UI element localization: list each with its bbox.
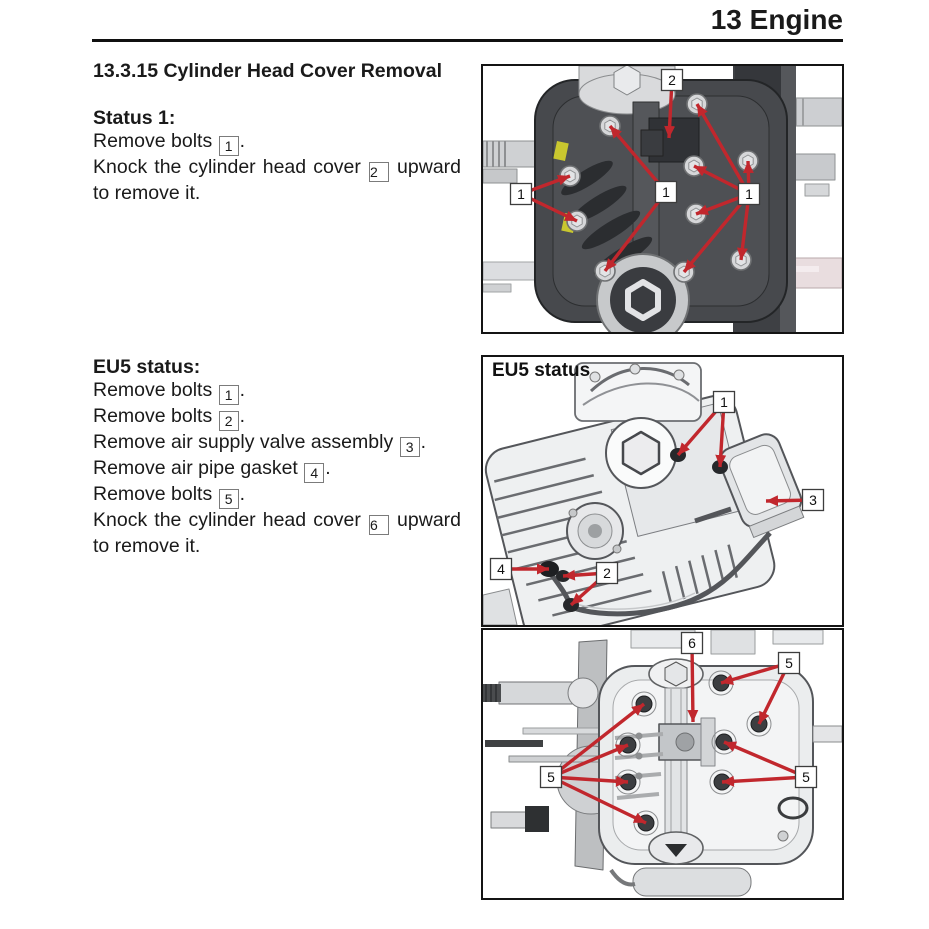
instruction-line: Remove air pipe gasket 4. [93,457,461,483]
svg-text:2: 2 [668,72,676,88]
instruction-lines: Remove bolts 1.Knock the cylinder head c… [93,130,461,205]
callout-ref-box: 2 [369,162,389,182]
instruction-block-eu5: EU5 status: Remove bolts 1.Remove bolts … [93,356,461,558]
svg-text:1: 1 [662,184,670,200]
callout-ref-box: 3 [400,437,420,457]
header-rule [92,39,843,42]
instruction-line: Knock the cylinder head cover 6 upward [93,509,461,535]
instruction-line: Knock the cylinder head cover 2 upward [93,156,461,182]
instruction-line: Remove bolts 5. [93,483,461,509]
callout-number-box: 1 [739,184,760,205]
callout-number-box: 4 [491,559,512,580]
figure-eu5-lower: 6555 [481,628,844,900]
svg-text:2: 2 [603,565,611,581]
svg-text:5: 5 [802,769,810,785]
section-title: 13.3.15 Cylinder Head Cover Removal [93,60,442,83]
instruction-line: to remove it. [93,535,461,558]
instruction-line: Remove bolts 1. [93,130,461,156]
callout-number-box: 1 [511,184,532,205]
block-heading: EU5 status: [93,356,461,379]
callout-ref-box: 6 [369,515,389,535]
svg-text:5: 5 [547,769,555,785]
instruction-block-status1: Status 1: Remove bolts 1.Knock the cylin… [93,107,461,205]
callout-number-box: 5 [779,653,800,674]
engine-illustration-eu5-head [483,363,808,625]
svg-text:4: 4 [497,561,505,577]
callout-ref-box: 4 [304,463,324,483]
figure-status1-illustration: 2111 [483,66,842,332]
manual-page: 13 Engine 13.3.15 Cylinder Head Cover Re… [0,0,929,929]
callout-number-box: 3 [803,490,824,511]
figure-eu5-upper-illustration: 1342 [483,357,842,625]
block-heading: Status 1: [93,107,461,130]
chapter-title: 13 Engine [711,4,843,36]
instruction-line: Remove air supply valve assembly 3. [93,431,461,457]
instruction-line: Remove bolts 2. [93,405,461,431]
instruction-lines: Remove bolts 1.Remove bolts 2.Remove air… [93,379,461,558]
figure-status1: 2111 [481,64,844,334]
callout-number-box: 2 [597,563,618,584]
callout-ref-box: 2 [219,411,239,431]
callout-arrow [692,643,693,722]
figure-label: EU5 status [492,360,590,382]
callout-ref-box: 1 [219,136,239,156]
svg-text:3: 3 [809,492,817,508]
figure-eu5-lower-illustration: 6555 [483,630,842,898]
callout-number-box: 5 [541,767,562,788]
callout-number-box: 5 [796,767,817,788]
callout-number-box: 1 [656,182,677,203]
callout-number-box: 2 [662,70,683,91]
svg-text:1: 1 [517,186,525,202]
callout-ref-box: 5 [219,489,239,509]
callout-ref-box: 1 [219,385,239,405]
instruction-line: Remove bolts 1. [93,379,461,405]
figure-eu5-upper: 1342 EU5 status [481,355,844,627]
svg-text:6: 6 [688,635,696,651]
callout-number-box: 1 [714,392,735,413]
svg-text:1: 1 [745,186,753,202]
svg-text:5: 5 [785,655,793,671]
svg-text:1: 1 [720,394,728,410]
callout-number-box: 6 [682,633,703,654]
instruction-line: to remove it. [93,182,461,205]
